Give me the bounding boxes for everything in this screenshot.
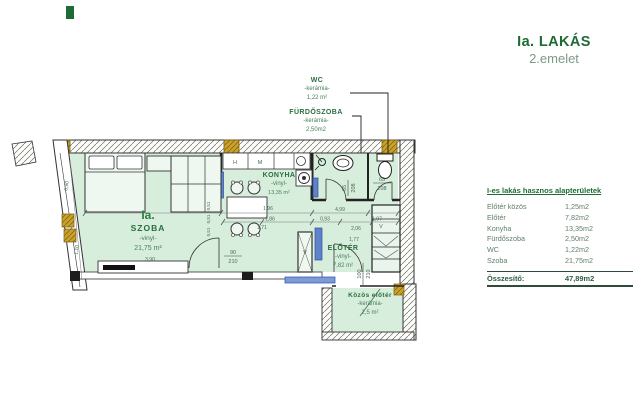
- dim-label: 0,51: [206, 201, 211, 210]
- svg-text:90: 90: [230, 250, 236, 256]
- total-value: 47,89m2: [565, 274, 594, 283]
- row-label: Szoba: [487, 256, 565, 267]
- room-area: 1,22 m²: [288, 94, 346, 103]
- chair-knob: [256, 233, 259, 236]
- dim-label: 4,99: [335, 207, 345, 213]
- area-table-title: I-es lakás hasznos alapterületek: [487, 186, 633, 195]
- cabinet: [147, 156, 171, 171]
- row-value: 1,25m2: [565, 202, 633, 213]
- wall-pier: [382, 140, 397, 153]
- room-finish: -kerámia-: [338, 300, 402, 309]
- total-label: Összesítő:: [487, 274, 565, 283]
- room-finish: -vinyl-: [250, 180, 308, 189]
- room-finish: -vinyl-: [318, 253, 368, 262]
- hall-room-label: ELŐTÉR -vinyl- 7,82 m²: [318, 244, 368, 271]
- dim-label: 0,93: [320, 217, 330, 223]
- apartment-title: Ia. LAKÁS: [499, 34, 609, 50]
- table-row: Konyha 13,35m2: [487, 224, 633, 235]
- shaft-column: [372, 205, 400, 272]
- bathroom-room-label: FÜRDŐSZOBA -kerámia- 2,50m2: [283, 108, 349, 135]
- dining-table: [227, 197, 267, 218]
- floor-subtitle: 2.emelet: [499, 51, 609, 66]
- room-name: FÜRDŐSZOBA: [283, 108, 349, 117]
- living-room-label: Ia. SZOBA -vinyl- 21,75 m²: [116, 208, 180, 254]
- row-label: Konyha: [487, 224, 565, 235]
- toilet-bowl: [379, 162, 392, 179]
- row-label: WC: [487, 245, 565, 256]
- room-area: 2,5 m²: [338, 309, 402, 318]
- dim-label: 1,96: [263, 206, 273, 212]
- room-name: ELŐTÉR: [318, 244, 368, 253]
- table-total-row: Összesítő: 47,89m2: [487, 271, 633, 287]
- table-row: Előtér közös 1,25m2: [487, 202, 633, 213]
- table-row: WC 1,22m2: [487, 245, 633, 256]
- shaft-label: V: [379, 224, 383, 230]
- chair-knob: [239, 233, 242, 236]
- table-row: Szoba 21,75m2: [487, 256, 633, 267]
- row-value: 7,82m2: [565, 213, 633, 224]
- table-row: Előtér 7,82m2: [487, 213, 633, 224]
- room-name: SZOBA: [116, 222, 180, 234]
- room-finish: -kerámia-: [283, 117, 349, 126]
- shared-hall-label: Közös előtér -kerámia- 2,5 m²: [338, 291, 402, 318]
- washer-label: M: [258, 160, 263, 166]
- corner-marker: [66, 6, 74, 19]
- chair-knob: [231, 233, 234, 236]
- wall-pier: [224, 140, 239, 153]
- fridge-label: H: [233, 160, 237, 166]
- room-name: WC: [288, 76, 346, 85]
- svg-text:210: 210: [228, 259, 237, 265]
- svg-text:65: 65: [342, 185, 348, 191]
- wall-pier: [64, 229, 76, 242]
- dim-label: 1,97: [372, 217, 382, 223]
- floorplan-sheet: 1,96 1,86 1,71 4,99 0,93 1,97 2,06 1,77 …: [0, 0, 640, 419]
- row-value: 2,50m2: [565, 234, 633, 245]
- dim-label: 2,06: [351, 226, 361, 232]
- row-value: 13,35m2: [565, 224, 633, 235]
- chair-knob: [231, 181, 234, 184]
- svg-text:208: 208: [351, 183, 357, 192]
- room-finish: -kerámia-: [288, 85, 346, 94]
- wc-room-label: WC -kerámia- 1,22 m²: [288, 76, 346, 103]
- area-table: I-es lakás hasznos alapterületek Előtér …: [487, 186, 633, 287]
- dim-label: 0,51: [206, 214, 211, 223]
- shaft-label: V: [303, 250, 307, 256]
- room-area: 13,35 m²: [250, 189, 308, 198]
- wall-pier: [62, 214, 74, 227]
- row-label: Fürdőszoba: [487, 234, 565, 245]
- washbasin: [333, 156, 353, 171]
- row-label: Előtér közös: [487, 202, 565, 213]
- room-name: Közös előtér: [338, 291, 402, 300]
- tv: [103, 265, 135, 270]
- svg-text:208: 208: [377, 186, 386, 192]
- pillow: [89, 156, 114, 169]
- pillow: [117, 156, 142, 169]
- chair-knob: [239, 181, 242, 184]
- row-value: 21,75m2: [565, 256, 633, 267]
- room-name: KONYHA: [250, 171, 308, 180]
- sheet-title: Ia. LAKÁS 2.emelet: [499, 34, 609, 66]
- chair-knob: [248, 233, 251, 236]
- room-finish: -vinyl-: [116, 234, 180, 244]
- kitchen-room-label: KONYHA -vinyl- 13,35 m²: [250, 171, 308, 198]
- dim-label: 1,71: [257, 225, 267, 231]
- dim-label: 0,51: [206, 227, 211, 236]
- unit-id: Ia.: [116, 208, 180, 222]
- room-area: 2,50m2: [283, 126, 349, 135]
- svg-text:65: 65: [379, 177, 385, 183]
- dim-label: 3,90: [145, 257, 155, 263]
- room-area: 21,75 m²: [116, 244, 180, 254]
- row-value: 1,22m2: [565, 245, 633, 256]
- dim-label: 1,86: [265, 217, 275, 223]
- room-area: 7,82 m²: [318, 262, 368, 271]
- row-label: Előtér: [487, 213, 565, 224]
- toilet-tank: [377, 154, 393, 161]
- dim-label: 1,77: [349, 237, 359, 243]
- table-row: Fürdőszoba 2,50m2: [487, 234, 633, 245]
